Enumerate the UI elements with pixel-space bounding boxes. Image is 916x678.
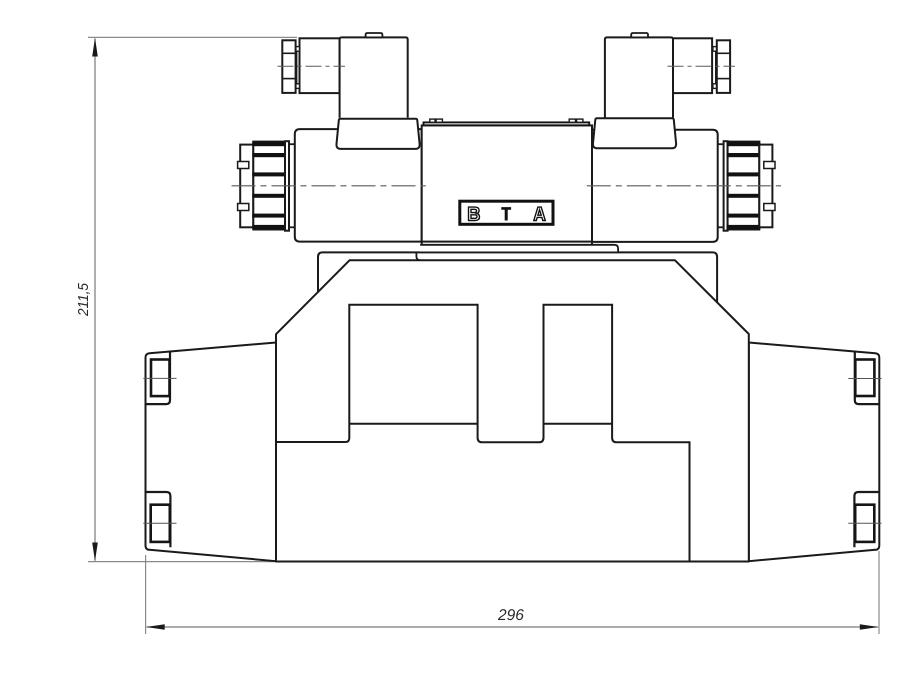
svg-text:211,5: 211,5 [75, 283, 92, 317]
svg-text:296: 296 [497, 607, 524, 624]
